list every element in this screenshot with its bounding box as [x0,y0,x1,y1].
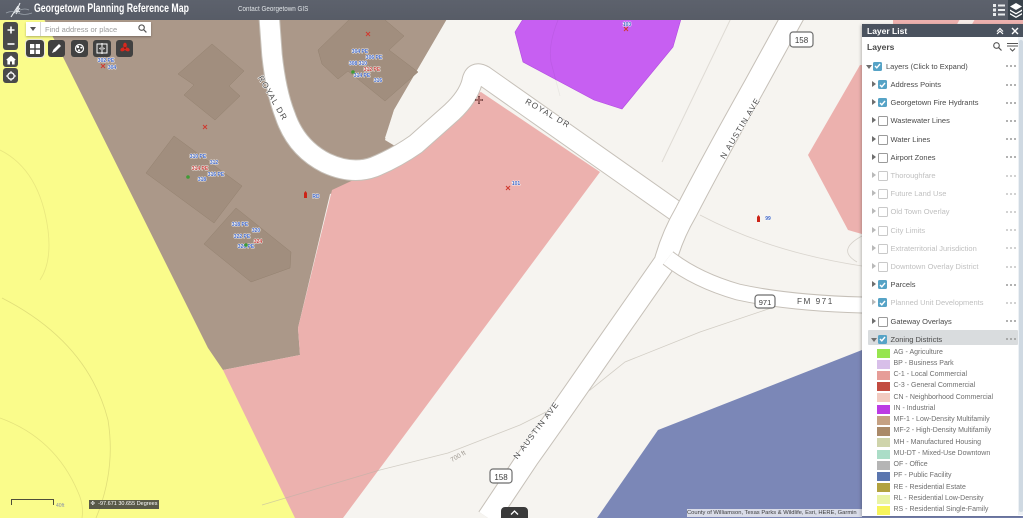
svg-text:320: 320 [252,228,261,234]
svg-text:40ft: 40ft [56,503,65,509]
svg-text:314 PE: 314 PE [192,166,209,172]
svg-text:324: 324 [254,239,263,245]
svg-text:314 PE: 314 PE [354,73,371,79]
svg-text:310 PE: 310 PE [190,154,207,160]
svg-text:101: 101 [512,181,521,187]
svg-text:99: 99 [765,216,771,222]
svg-text:316: 316 [374,78,383,84]
svg-text:316 PE: 316 PE [208,172,225,178]
svg-text:304: 304 [108,65,117,71]
svg-text:158: 158 [795,36,809,45]
svg-text:312: 312 [210,160,219,166]
svg-text:318 PE: 318 PE [232,222,249,228]
svg-text:322 PE: 322 PE [234,234,251,240]
svg-text:RD: RD [312,194,320,200]
svg-text:302 PE: 302 PE [98,58,115,64]
svg-text:FM 971: FM 971 [797,297,834,306]
svg-text:158: 158 [494,473,508,482]
svg-text:306 PE: 306 PE [366,55,383,61]
svg-text:971: 971 [759,298,772,307]
svg-text:318: 318 [198,177,207,183]
